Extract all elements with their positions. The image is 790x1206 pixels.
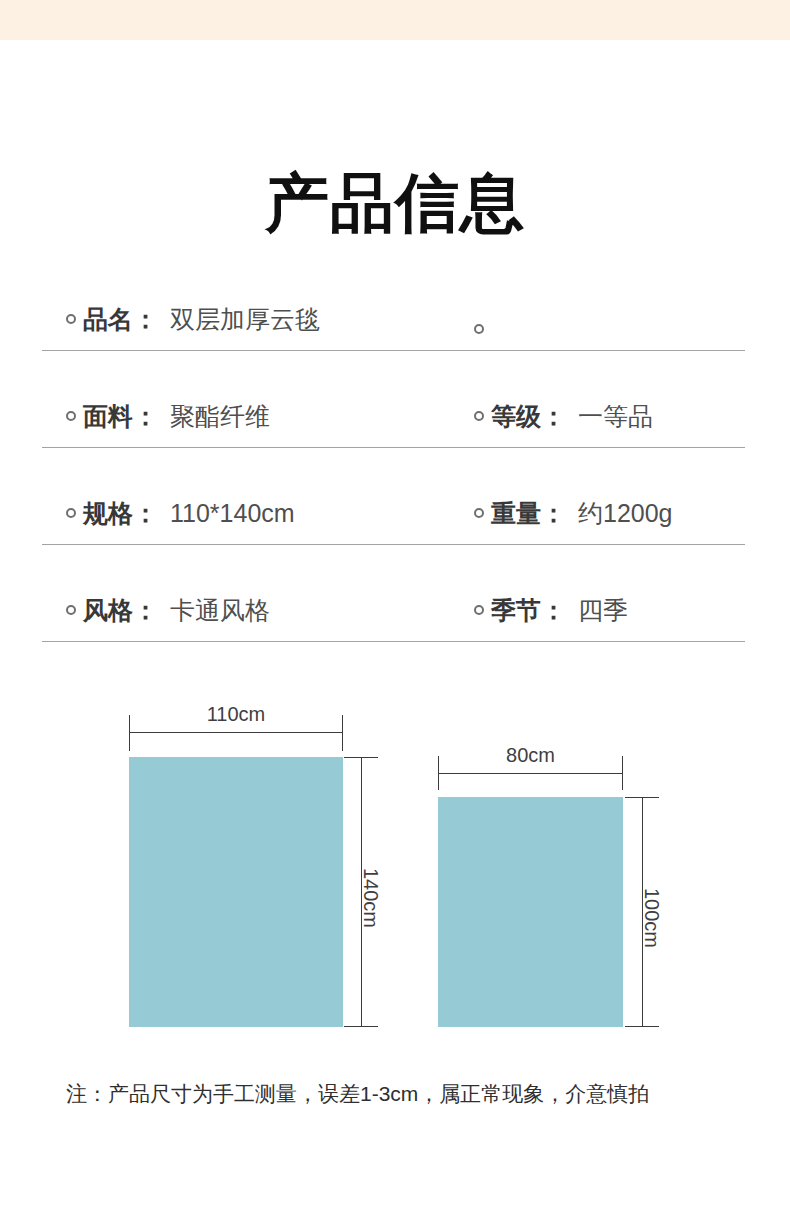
spec-cell xyxy=(450,324,745,350)
spec-row-style-season: 风格： 卡通风格 季节： 四季 xyxy=(42,545,745,642)
bullet-icon xyxy=(474,411,484,421)
spec-cell: 季节： 四季 xyxy=(450,595,745,641)
spec-cell: 等级： 一等品 xyxy=(450,401,745,447)
spec-label: 重量： xyxy=(491,498,566,528)
spec-row-size-weight: 规格： 110*140cm 重量： 约1200g xyxy=(42,448,745,545)
width-dimension-label: 110cm xyxy=(129,702,343,726)
spec-value: 一等品 xyxy=(578,401,653,431)
spec-value: 110*140cm xyxy=(170,498,295,528)
dimension-tick xyxy=(625,1026,659,1027)
bullet-icon xyxy=(66,314,76,324)
spec-label: 面料： xyxy=(83,401,158,431)
dimension-line xyxy=(438,773,623,774)
spec-value: 聚酯纤维 xyxy=(170,401,270,431)
measurement-note: 注：产品尺寸为手工测量，误差1-3cm，属正常现象，介意慎拍 xyxy=(66,1080,649,1107)
spec-value: 卡通风格 xyxy=(170,595,270,625)
spec-cell: 重量： 约1200g xyxy=(450,498,745,544)
spec-cell: 面料： 聚酯纤维 xyxy=(42,401,450,447)
spec-row-fabric-grade: 面料： 聚酯纤维 等级： 一等品 xyxy=(42,351,745,448)
blanket-rect xyxy=(129,757,343,1027)
dimension-line xyxy=(129,732,343,733)
spec-value: 双层加厚云毯 xyxy=(170,304,320,334)
blanket-rect xyxy=(438,797,623,1027)
spec-label: 季节： xyxy=(491,595,566,625)
spec-cell: 风格： 卡通风格 xyxy=(42,595,450,641)
top-banner xyxy=(0,0,790,40)
spec-cell: 规格： 110*140cm xyxy=(42,498,450,544)
width-dimension-label: 80cm xyxy=(438,743,623,767)
dimension-tick xyxy=(344,757,378,758)
bullet-icon xyxy=(474,605,484,615)
bullet-icon xyxy=(66,508,76,518)
page-title: 产品信息 xyxy=(0,160,790,247)
bullet-icon xyxy=(474,324,484,334)
spec-value: 四季 xyxy=(578,595,628,625)
dimension-tick xyxy=(344,1026,378,1027)
spec-label: 品名： xyxy=(83,304,158,334)
spec-value: 约1200g xyxy=(578,498,673,528)
spec-label: 风格： xyxy=(83,595,158,625)
bullet-icon xyxy=(66,605,76,615)
spec-label: 规格： xyxy=(83,498,158,528)
height-dimension-label: 140cm xyxy=(359,868,383,928)
bullet-icon xyxy=(474,508,484,518)
bullet-icon xyxy=(66,411,76,421)
spec-row-name: 品名： 双层加厚云毯 xyxy=(42,254,745,351)
spec-label: 等级： xyxy=(491,401,566,431)
dimension-tick xyxy=(625,797,659,798)
spec-table: 品名： 双层加厚云毯 面料： 聚酯纤维 等级： 一等品 规格： 110*140c… xyxy=(42,254,745,642)
height-dimension-label: 100cm xyxy=(640,888,664,948)
spec-cell: 品名： 双层加厚云毯 xyxy=(42,304,450,350)
